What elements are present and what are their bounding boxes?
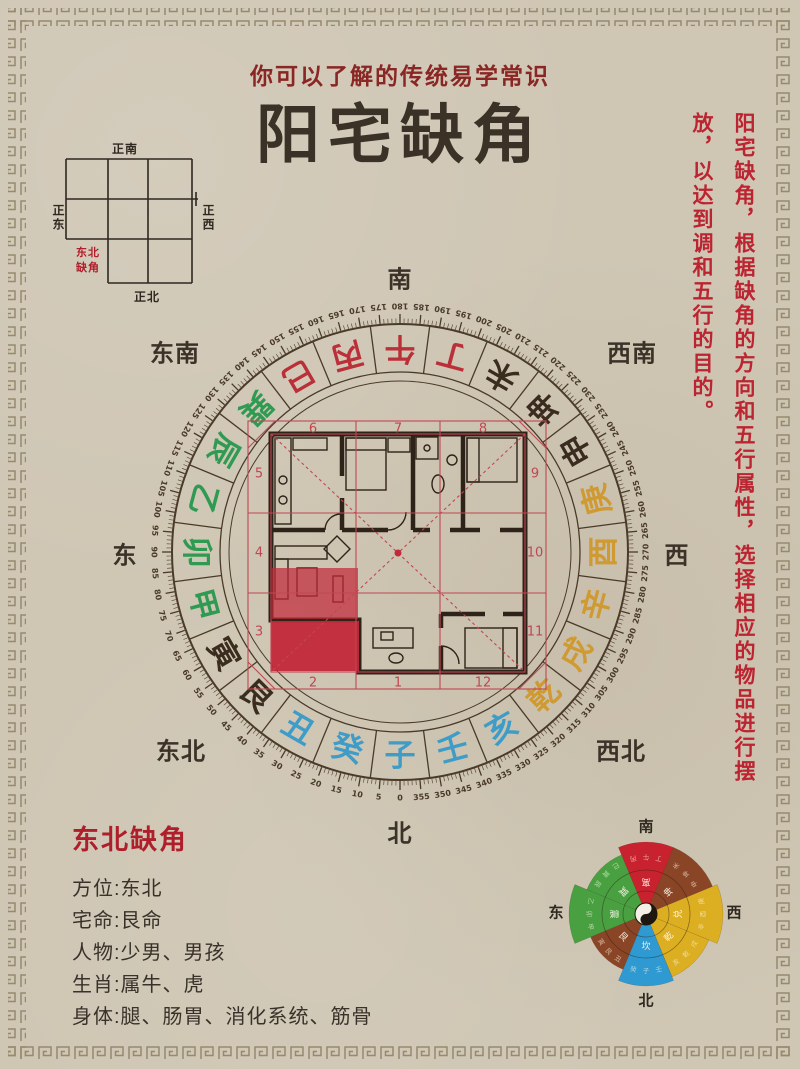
svg-text:300: 300: [605, 665, 621, 684]
svg-text:50: 50: [205, 703, 219, 718]
svg-text:6: 6: [309, 422, 317, 437]
svg-text:壬: 壬: [433, 728, 472, 771]
svg-text:9: 9: [531, 467, 539, 482]
svg-text:305: 305: [593, 683, 610, 702]
svg-text:酉: 酉: [699, 910, 707, 917]
svg-text:100: 100: [152, 500, 164, 518]
svg-text:30: 30: [270, 758, 285, 772]
dir-label-northeast: 东北: [156, 732, 206, 767]
svg-text:320: 320: [549, 731, 568, 749]
svg-text:10: 10: [527, 546, 544, 561]
svg-text:庚: 庚: [576, 480, 619, 519]
info-row-people: 人物:少男、男孩: [72, 937, 492, 969]
svg-text:275: 275: [640, 564, 650, 582]
svg-text:145: 145: [249, 342, 268, 359]
svg-text:210: 210: [513, 331, 532, 347]
svg-text:5: 5: [255, 467, 263, 482]
mini-grid-missing-corner-label: 东北缺角: [76, 246, 102, 276]
svg-text:120: 120: [179, 420, 195, 439]
svg-text:25: 25: [289, 769, 303, 782]
svg-text:离: 离: [641, 876, 650, 888]
svg-text:癸: 癸: [328, 728, 367, 771]
svg-text:155: 155: [286, 321, 305, 336]
svg-text:280: 280: [636, 585, 648, 603]
svg-text:申: 申: [553, 428, 600, 473]
svg-text:辰: 辰: [200, 428, 247, 473]
svg-text:80: 80: [152, 588, 163, 601]
svg-text:240: 240: [605, 419, 621, 438]
svg-text:卯: 卯: [178, 537, 214, 568]
svg-text:1: 1: [394, 676, 402, 691]
side-note: 阳宅缺角，根据缺角的方向和五行属性，选择相应的物品进行摆放，以达到调和五行的目的…: [722, 112, 764, 804]
svg-text:195: 195: [454, 308, 473, 321]
svg-text:75: 75: [157, 609, 169, 623]
svg-text:310: 310: [580, 701, 598, 720]
border-bottom: [8, 1043, 792, 1061]
svg-text:90: 90: [150, 546, 159, 558]
info-row-body: 身体:腿、肠胃、消化系统、筋骨: [72, 1001, 492, 1033]
svg-text:辛: 辛: [576, 585, 619, 624]
svg-text:丙: 丙: [328, 334, 367, 377]
svg-text:兑: 兑: [672, 909, 684, 918]
svg-text:3: 3: [255, 625, 263, 640]
svg-text:165: 165: [327, 308, 346, 321]
svg-text:270: 270: [642, 543, 651, 560]
svg-text:190: 190: [433, 304, 451, 316]
dir-label-northwest: 西北: [596, 732, 646, 767]
svg-text:265: 265: [640, 521, 650, 539]
svg-text:330: 330: [514, 757, 533, 773]
svg-text:180: 180: [391, 302, 408, 311]
svg-text:卯: 卯: [585, 911, 594, 918]
svg-text:丑: 丑: [276, 705, 321, 752]
svg-text:午: 午: [642, 853, 649, 862]
svg-text:40: 40: [235, 733, 250, 747]
svg-text:戌: 戌: [553, 632, 600, 677]
svg-text:125: 125: [190, 401, 207, 420]
svg-text:10: 10: [351, 789, 364, 800]
svg-text:亥: 亥: [480, 705, 525, 752]
svg-text:70: 70: [163, 629, 175, 643]
svg-text:345: 345: [454, 783, 473, 796]
dir-label-west: 西: [665, 536, 690, 571]
svg-text:0: 0: [397, 794, 403, 803]
svg-text:295: 295: [615, 646, 630, 665]
svg-text:坎: 坎: [641, 940, 650, 952]
svg-text:未: 未: [480, 352, 525, 399]
svg-text:230: 230: [579, 384, 597, 403]
bagua-label-west: 西: [726, 902, 741, 923]
floorplan: 123456789101112: [245, 418, 549, 692]
svg-text:2: 2: [309, 676, 317, 691]
svg-text:140: 140: [232, 355, 251, 373]
svg-text:5: 5: [375, 792, 382, 801]
svg-text:160: 160: [306, 314, 325, 328]
mini-grid-label-east: 正东: [50, 204, 67, 232]
svg-text:7: 7: [394, 422, 402, 437]
svg-text:115: 115: [169, 439, 184, 458]
svg-text:95: 95: [150, 525, 160, 537]
info-row-direction: 方位:东北: [72, 873, 492, 905]
svg-text:285: 285: [631, 606, 644, 625]
svg-text:325: 325: [532, 745, 551, 762]
svg-text:250: 250: [624, 458, 638, 477]
svg-text:255: 255: [631, 479, 644, 498]
svg-text:4: 4: [255, 546, 263, 561]
bagua-label-south: 南: [638, 816, 653, 837]
svg-text:酉: 酉: [586, 537, 622, 568]
svg-text:11: 11: [527, 625, 544, 640]
svg-text:105: 105: [156, 479, 169, 498]
dir-label-east: 东: [113, 536, 138, 571]
svg-text:110: 110: [162, 458, 176, 477]
svg-text:35: 35: [252, 747, 267, 761]
svg-text:55: 55: [192, 686, 206, 701]
mini-grid-label-west: 正西: [200, 204, 217, 232]
missing-corner-highlight: [271, 621, 359, 671]
dir-label-southeast: 东南: [150, 334, 200, 369]
svg-text:子: 子: [643, 967, 650, 975]
mini-grid-label-south: 正南: [112, 140, 138, 157]
svg-text:60: 60: [180, 668, 194, 683]
dir-label-south: 南: [388, 260, 413, 295]
svg-text:290: 290: [624, 626, 638, 645]
svg-text:260: 260: [636, 500, 648, 518]
svg-text:220: 220: [549, 354, 568, 372]
info-row-house-fate: 宅命:艮命: [72, 905, 492, 937]
floorplan-center-dot: [395, 550, 402, 557]
dir-label-southwest: 西南: [607, 334, 657, 369]
svg-text:65: 65: [171, 649, 184, 663]
svg-text:巳: 巳: [276, 352, 321, 399]
svg-text:45: 45: [219, 719, 234, 734]
info-row-zodiac: 生肖:属牛、虎: [72, 969, 492, 1001]
svg-text:245: 245: [615, 438, 630, 457]
mini-grid-lines: [50, 140, 220, 310]
svg-text:甲: 甲: [182, 585, 225, 624]
bagua-label-north: 北: [638, 990, 653, 1011]
bagua-wheel: 离丙午丁坤未坤申兑庚酉辛乾戌乾亥坎壬子癸艮丑艮寅震甲卯乙巽辰巽巳: [565, 833, 727, 995]
svg-text:12: 12: [475, 676, 492, 691]
svg-text:215: 215: [531, 342, 550, 359]
info-heading: 东北缺角: [72, 818, 492, 857]
svg-text:150: 150: [267, 331, 286, 347]
info-block: 东北缺角 方位:东北 宅命:艮命 人物:少男、男孩 生肖:属牛、虎 身体:腿、肠…: [72, 818, 492, 1033]
svg-text:335: 335: [494, 767, 513, 782]
svg-text:185: 185: [412, 302, 430, 312]
svg-text:175: 175: [369, 302, 387, 312]
mini-grid-diagram: 正南 正北 正东 正西 东北缺角: [50, 140, 220, 310]
svg-text:205: 205: [494, 321, 513, 336]
svg-text:85: 85: [150, 567, 160, 579]
feng-shui-poster: 你可以了解的传统易学常识 阳宅缺角 正南 正北 正东 正西 东北缺角 阳宅缺角，…: [0, 0, 800, 1069]
svg-text:170: 170: [348, 304, 366, 316]
svg-text:15: 15: [330, 784, 344, 796]
svg-text:20: 20: [309, 777, 323, 789]
svg-text:355: 355: [413, 792, 431, 802]
svg-text:8: 8: [479, 422, 487, 437]
svg-text:200: 200: [474, 314, 493, 328]
bagua-label-east: 东: [548, 902, 563, 923]
svg-text:寅: 寅: [200, 632, 247, 677]
svg-text:乙: 乙: [182, 480, 225, 519]
svg-text:340: 340: [475, 776, 494, 790]
svg-text:丁: 丁: [433, 334, 472, 377]
svg-text:子: 子: [385, 738, 416, 774]
svg-text:130: 130: [202, 385, 220, 404]
svg-text:午: 午: [385, 330, 416, 366]
border-top: [8, 8, 792, 26]
svg-text:震: 震: [608, 909, 619, 918]
svg-text:235: 235: [593, 401, 610, 420]
svg-text:350: 350: [434, 788, 452, 800]
